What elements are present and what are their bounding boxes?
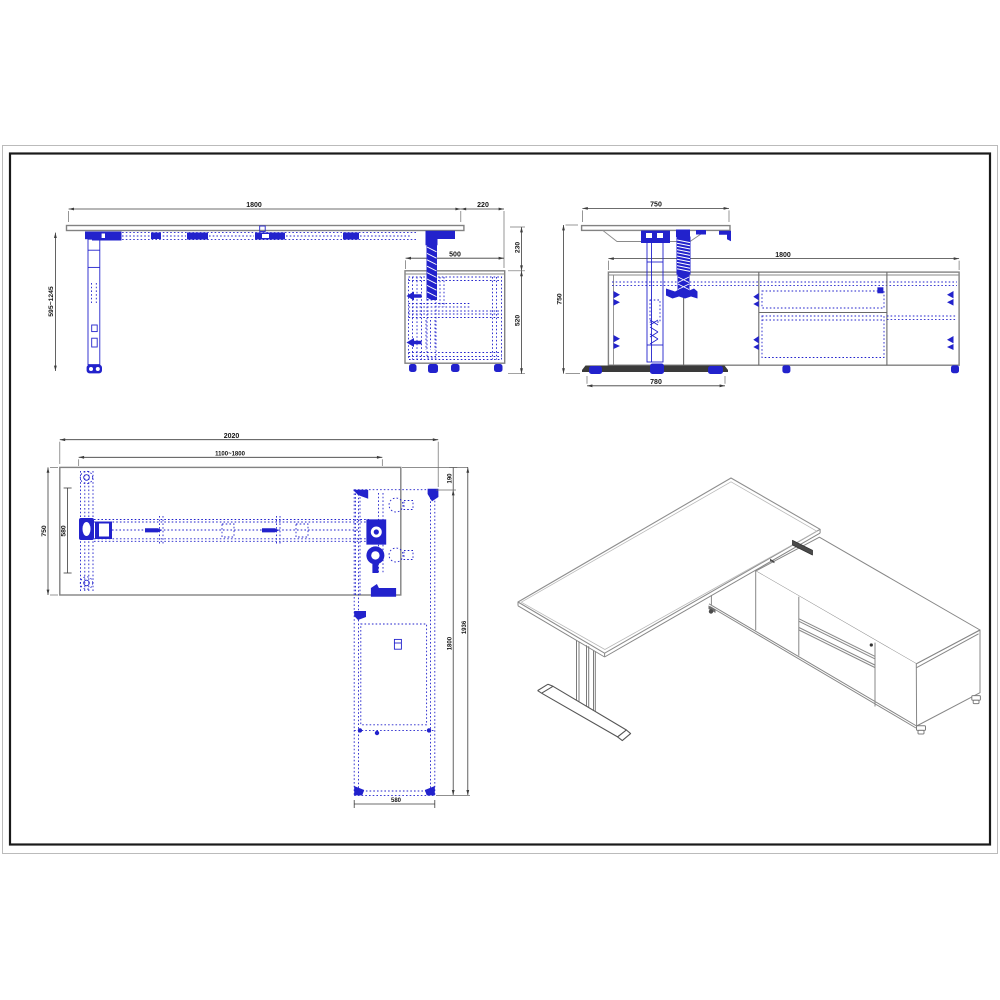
svg-text:220: 220 bbox=[477, 202, 489, 209]
svg-text:1800: 1800 bbox=[775, 252, 791, 259]
svg-text:2020: 2020 bbox=[224, 433, 240, 440]
svg-text:500: 500 bbox=[449, 251, 461, 258]
svg-text:190: 190 bbox=[447, 473, 453, 484]
svg-text:780: 780 bbox=[650, 379, 662, 386]
svg-text:750: 750 bbox=[41, 525, 48, 537]
svg-text:750: 750 bbox=[650, 202, 662, 209]
svg-text:1800: 1800 bbox=[246, 202, 262, 209]
svg-text:1100~1800: 1100~1800 bbox=[215, 452, 246, 458]
svg-text:580: 580 bbox=[60, 525, 67, 537]
svg-text:520: 520 bbox=[514, 315, 521, 327]
svg-text:1800: 1800 bbox=[448, 636, 454, 650]
svg-text:1936: 1936 bbox=[462, 620, 468, 634]
svg-text:750: 750 bbox=[556, 293, 563, 305]
svg-text:580: 580 bbox=[391, 798, 402, 804]
svg-text:230: 230 bbox=[514, 242, 521, 254]
svg-text:595~1245: 595~1245 bbox=[48, 286, 55, 317]
